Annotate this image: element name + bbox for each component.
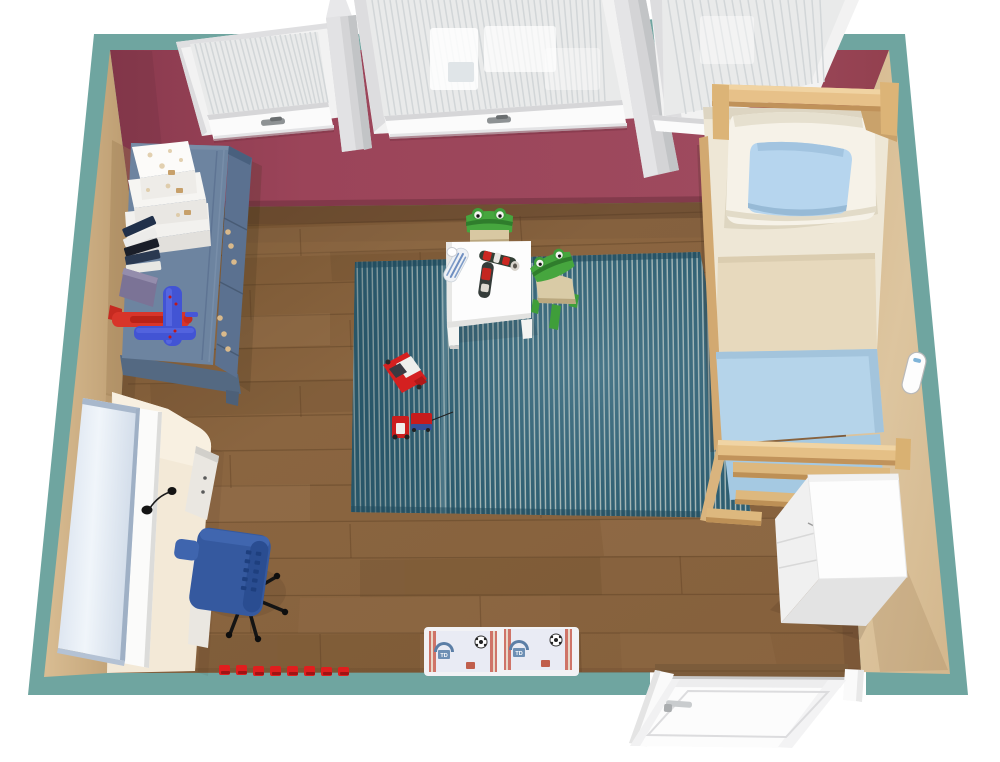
svg-text:TD: TD [515,651,522,657]
svg-text:TD: TD [440,653,447,659]
